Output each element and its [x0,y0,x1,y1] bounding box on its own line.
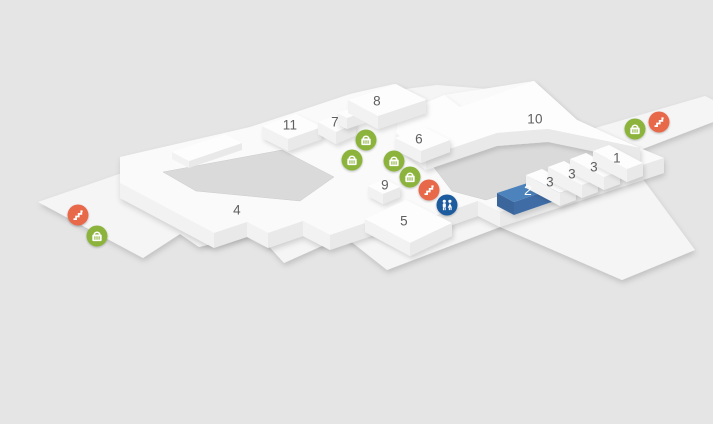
unit-label-7[interactable]: 7 [331,115,339,130]
unit-label-10[interactable]: 10 [527,112,543,127]
unit-label-9[interactable]: 9 [381,178,389,193]
indoor-floor-map: 456789101112333 [0,0,713,424]
unit-label-1[interactable]: 1 [613,151,621,166]
unit-label-3[interactable]: 3 [546,175,554,190]
floor-map-canvas [0,0,713,424]
unit-label-5[interactable]: 5 [400,214,408,229]
shop-icon[interactable] [356,130,377,151]
unit-label-2[interactable]: 2 [524,182,532,198]
shop-icon[interactable] [87,226,108,247]
escalator-icon[interactable] [68,205,89,226]
escalator-icon[interactable] [649,112,670,133]
unit-label-4[interactable]: 4 [233,203,241,218]
shop-icon[interactable] [625,119,646,140]
unit-label-3[interactable]: 3 [568,167,576,182]
unit-label-8[interactable]: 8 [373,94,381,109]
unit-label-3[interactable]: 3 [590,160,598,175]
shop-icon[interactable] [400,167,421,188]
unit-label-11[interactable]: 11 [283,118,298,133]
unit-label-6[interactable]: 6 [415,132,423,147]
shop-icon[interactable] [342,150,363,171]
restroom-icon[interactable] [437,195,458,216]
